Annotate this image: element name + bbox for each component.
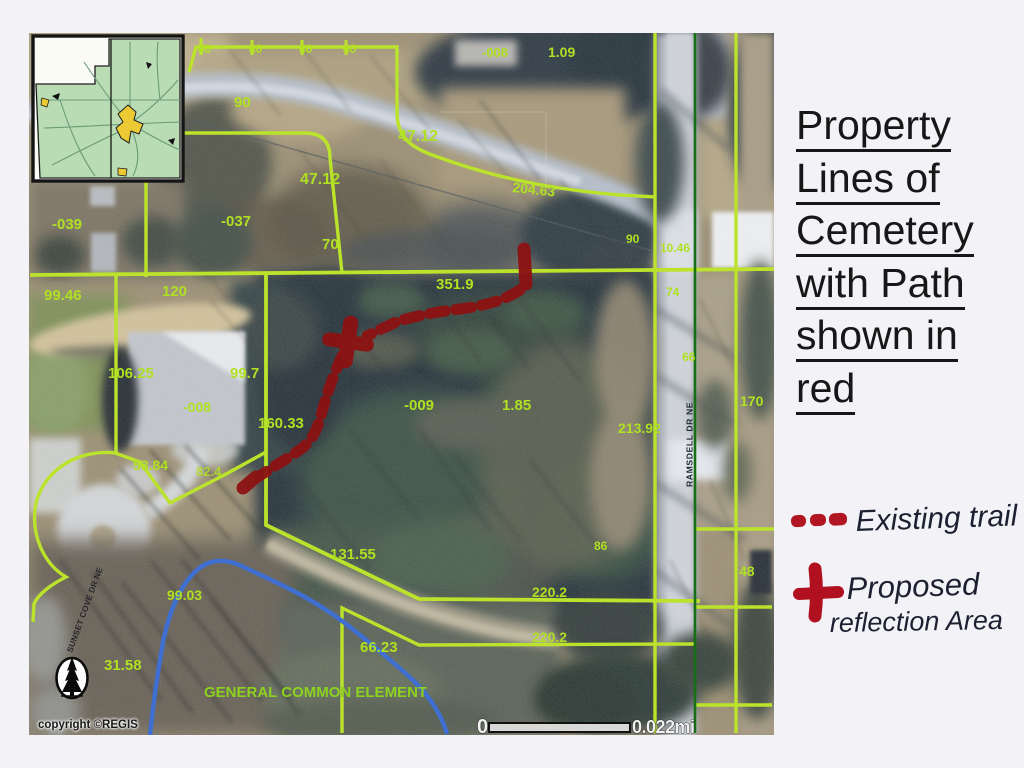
svg-text:reflection Area: reflection Area xyxy=(830,605,1004,638)
svg-text:Proposed: Proposed xyxy=(846,566,982,606)
svg-text:Existing trail: Existing trail xyxy=(855,499,1019,538)
